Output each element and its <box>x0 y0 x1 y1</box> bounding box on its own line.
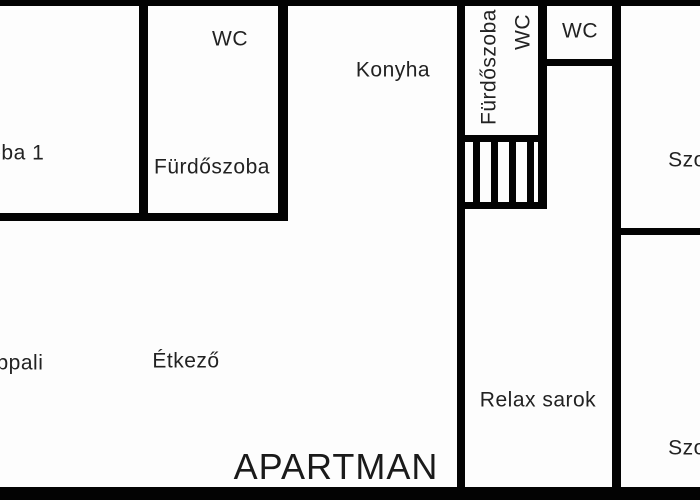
room-label-etkezo: Étkező <box>152 351 219 372</box>
wall-right-rooms-divider <box>621 228 700 235</box>
stair-step-bar <box>491 142 498 202</box>
wall-center-bathroom-right <box>538 0 547 209</box>
wall-left-rooms-bottom <box>0 213 288 221</box>
room-label-konyha: Konyha <box>356 60 430 81</box>
wall-center-left <box>457 0 465 487</box>
wall-bottom <box>0 487 700 500</box>
room-label-furdoszoba-left: Fürdőszoba <box>154 157 270 178</box>
wall-stairs-top <box>465 135 538 142</box>
plan-title: APARTMAN <box>234 449 439 485</box>
stair-step-bar <box>509 142 516 202</box>
wall-stairs-bottom <box>465 202 538 209</box>
wall-bathroom-left-right <box>278 0 288 221</box>
stair-step-bar <box>473 142 480 202</box>
wall-szoba1-right <box>139 0 148 221</box>
wall-wc-top-bottom <box>543 59 613 66</box>
floor-plan: Szoba 1 WC Fürdőszoba Konyha Fürdőszoba … <box>0 0 700 500</box>
room-label-szoba1: Szoba 1 <box>0 143 44 164</box>
room-label-wc-top: WC <box>562 21 598 42</box>
room-label-szoba-bottom-right: Szo <box>668 438 700 459</box>
room-label-wc-left: WC <box>212 29 248 50</box>
room-label-furdoszoba-vertical: Fürdőszoba <box>479 9 500 125</box>
room-label-relax-sarok: Relax sarok <box>480 390 596 411</box>
wall-top <box>0 0 700 6</box>
wall-right-rooms <box>612 0 621 487</box>
room-label-szoba-top-right: Szo <box>668 150 700 171</box>
room-label-wc-vertical: WC <box>513 14 534 50</box>
stair-step-bar <box>527 142 534 202</box>
room-label-nappali: Nappali <box>0 353 43 374</box>
